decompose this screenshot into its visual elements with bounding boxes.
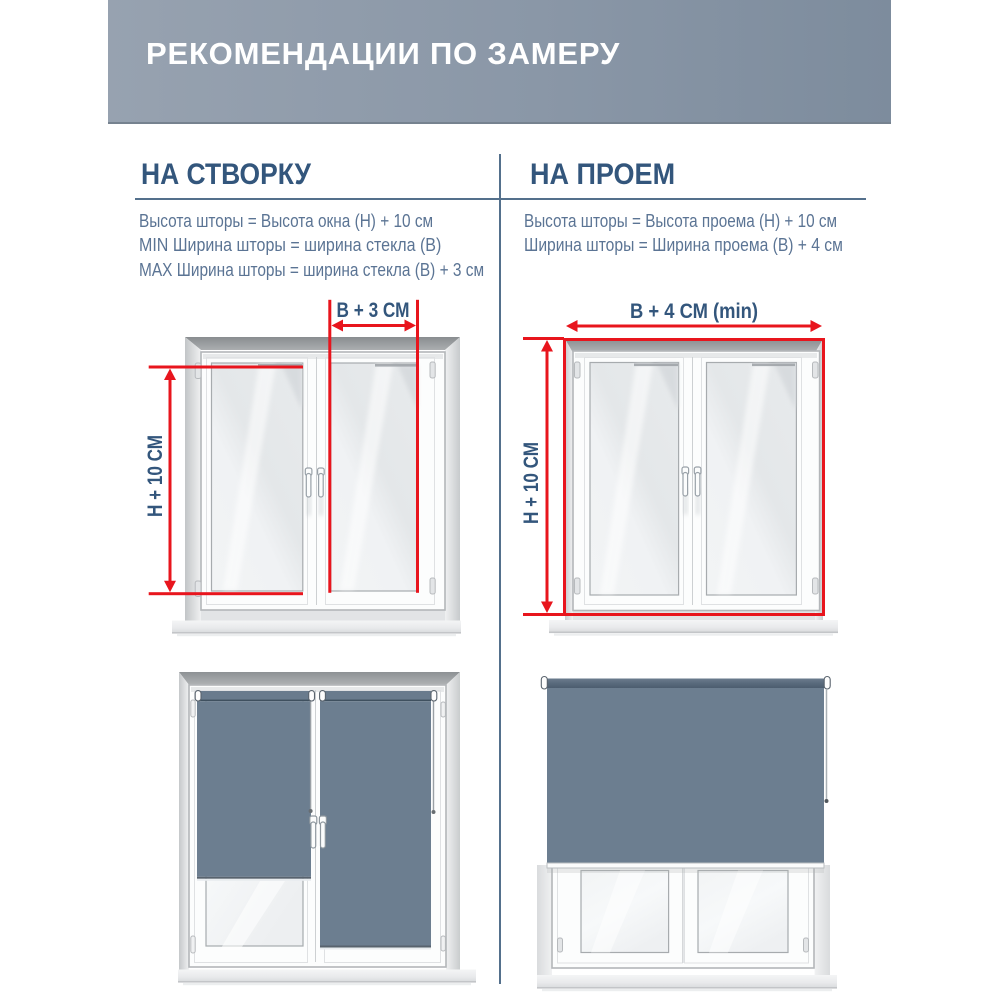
svg-text:В + 4 СМ (min): В + 4 СМ (min)	[630, 300, 758, 323]
svg-text:Н + 10 СМ: Н + 10 СМ	[520, 442, 543, 524]
svg-text:В + 3 СМ: В + 3 СМ	[337, 299, 410, 322]
svg-text:Н + 10 СМ: Н + 10 СМ	[144, 435, 167, 517]
